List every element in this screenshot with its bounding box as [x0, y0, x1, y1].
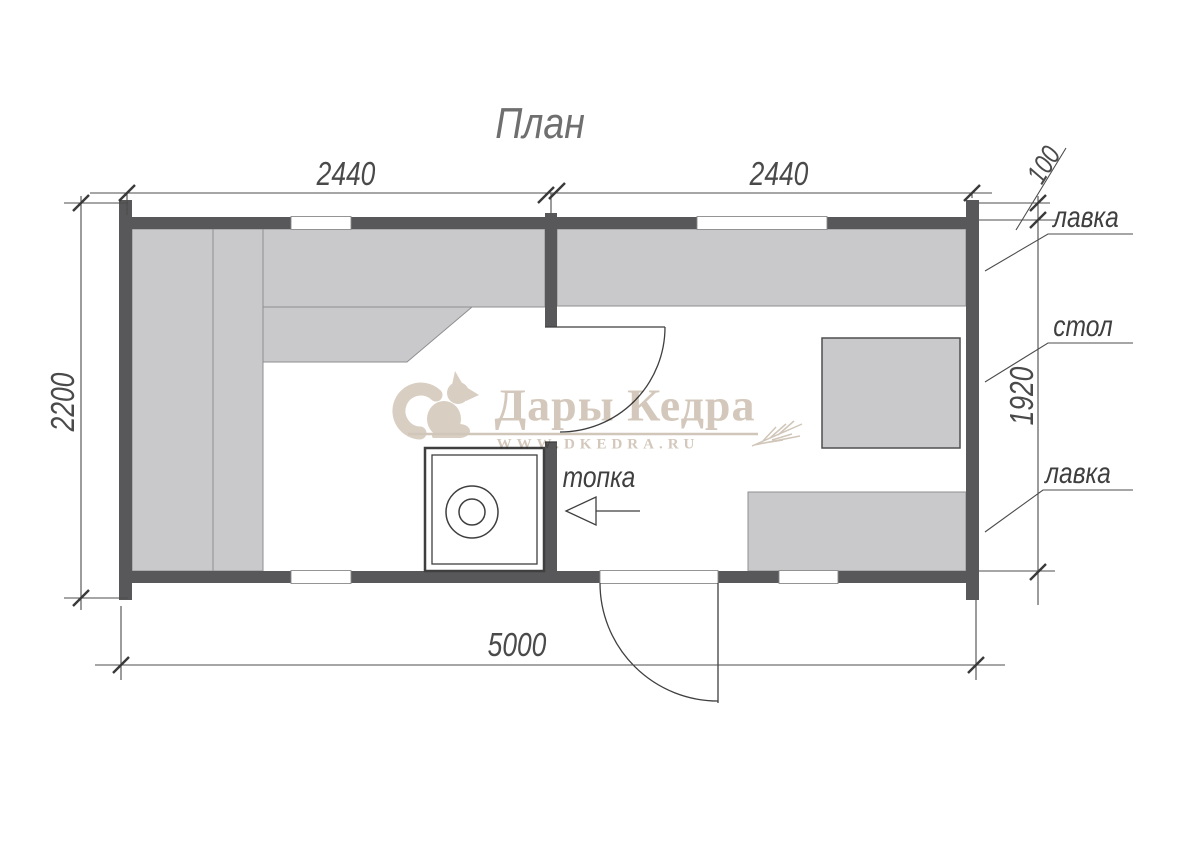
- label-furnace: топка: [563, 461, 636, 495]
- squirrel-ear: [452, 371, 462, 385]
- dimension-top-left: 2440: [317, 155, 376, 193]
- furnace-arrow-head: [566, 497, 596, 525]
- bottom-wall: [119, 571, 979, 583]
- window-top-right: [697, 217, 827, 230]
- left-wall: [119, 200, 132, 600]
- steam-room-top-bench: [263, 229, 545, 307]
- label-table: стол: [1053, 310, 1113, 344]
- partition-wall-upper: [545, 213, 557, 327]
- table: [822, 338, 960, 448]
- window-bottom-left: [291, 571, 351, 584]
- squirrel-head: [447, 382, 469, 404]
- wheat-sprig-icon: [752, 421, 802, 446]
- dimension-right-inner-height: 1920: [1003, 367, 1041, 426]
- right-wall: [966, 200, 979, 600]
- floor-plan-page: План 2440 2440 100 2200 1920 5000 лавка …: [0, 0, 1200, 848]
- watermark-url-text: WWW.DKEDRA.RU: [497, 437, 700, 454]
- furnace-arrow: [566, 497, 640, 525]
- rest-room-bottom-bench: [748, 492, 966, 571]
- label-bench-top: лавка: [1053, 201, 1119, 235]
- left-bench-inner: [213, 229, 263, 571]
- steam-room-step-bench: [263, 307, 472, 362]
- label-bench-bottom: лавка: [1045, 457, 1111, 491]
- squirrel-logo-icon: [399, 371, 479, 438]
- rest-room-top-bench: [557, 229, 966, 306]
- dimension-top-right: 2440: [750, 155, 809, 193]
- entry-door-opening: [600, 571, 718, 584]
- dimension-bottom-width: 5000: [488, 626, 547, 664]
- window-top-left: [291, 217, 351, 230]
- squirrel-snout: [466, 387, 479, 401]
- stove: [425, 448, 544, 571]
- window-bottom-right: [779, 571, 838, 584]
- dimension-left-height: 2200: [44, 373, 82, 432]
- left-bench-outer: [132, 229, 213, 571]
- partition-wall-lower: [545, 442, 557, 571]
- watermark-brand-text: Дары Кедра: [495, 379, 756, 432]
- drawing-title: План: [495, 99, 585, 149]
